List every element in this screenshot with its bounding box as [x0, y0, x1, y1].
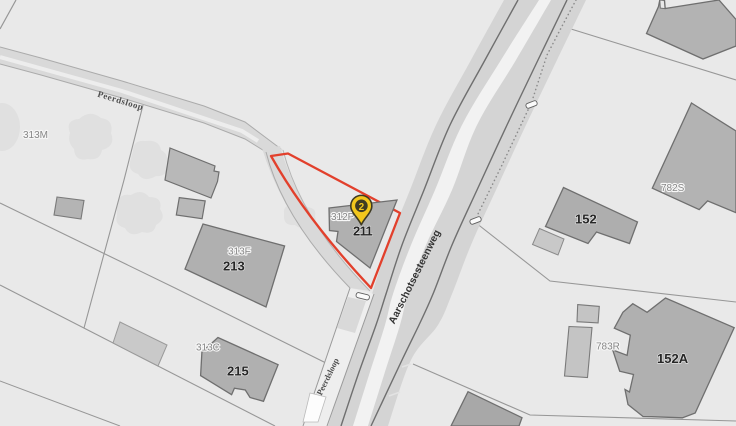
svg-text:312P: 312P: [331, 212, 355, 223]
svg-text:313C: 313C: [196, 343, 220, 354]
svg-text:313M: 313M: [23, 130, 48, 141]
svg-text:782S: 782S: [661, 183, 685, 194]
svg-text:2: 2: [359, 202, 365, 213]
svg-text:211: 211: [353, 224, 373, 239]
svg-text:152A: 152A: [657, 351, 689, 366]
svg-text:213: 213: [223, 259, 245, 274]
svg-text:152: 152: [575, 212, 597, 227]
svg-text:215: 215: [227, 364, 249, 379]
svg-text:313F: 313F: [228, 247, 251, 258]
svg-text:783R: 783R: [596, 342, 620, 353]
